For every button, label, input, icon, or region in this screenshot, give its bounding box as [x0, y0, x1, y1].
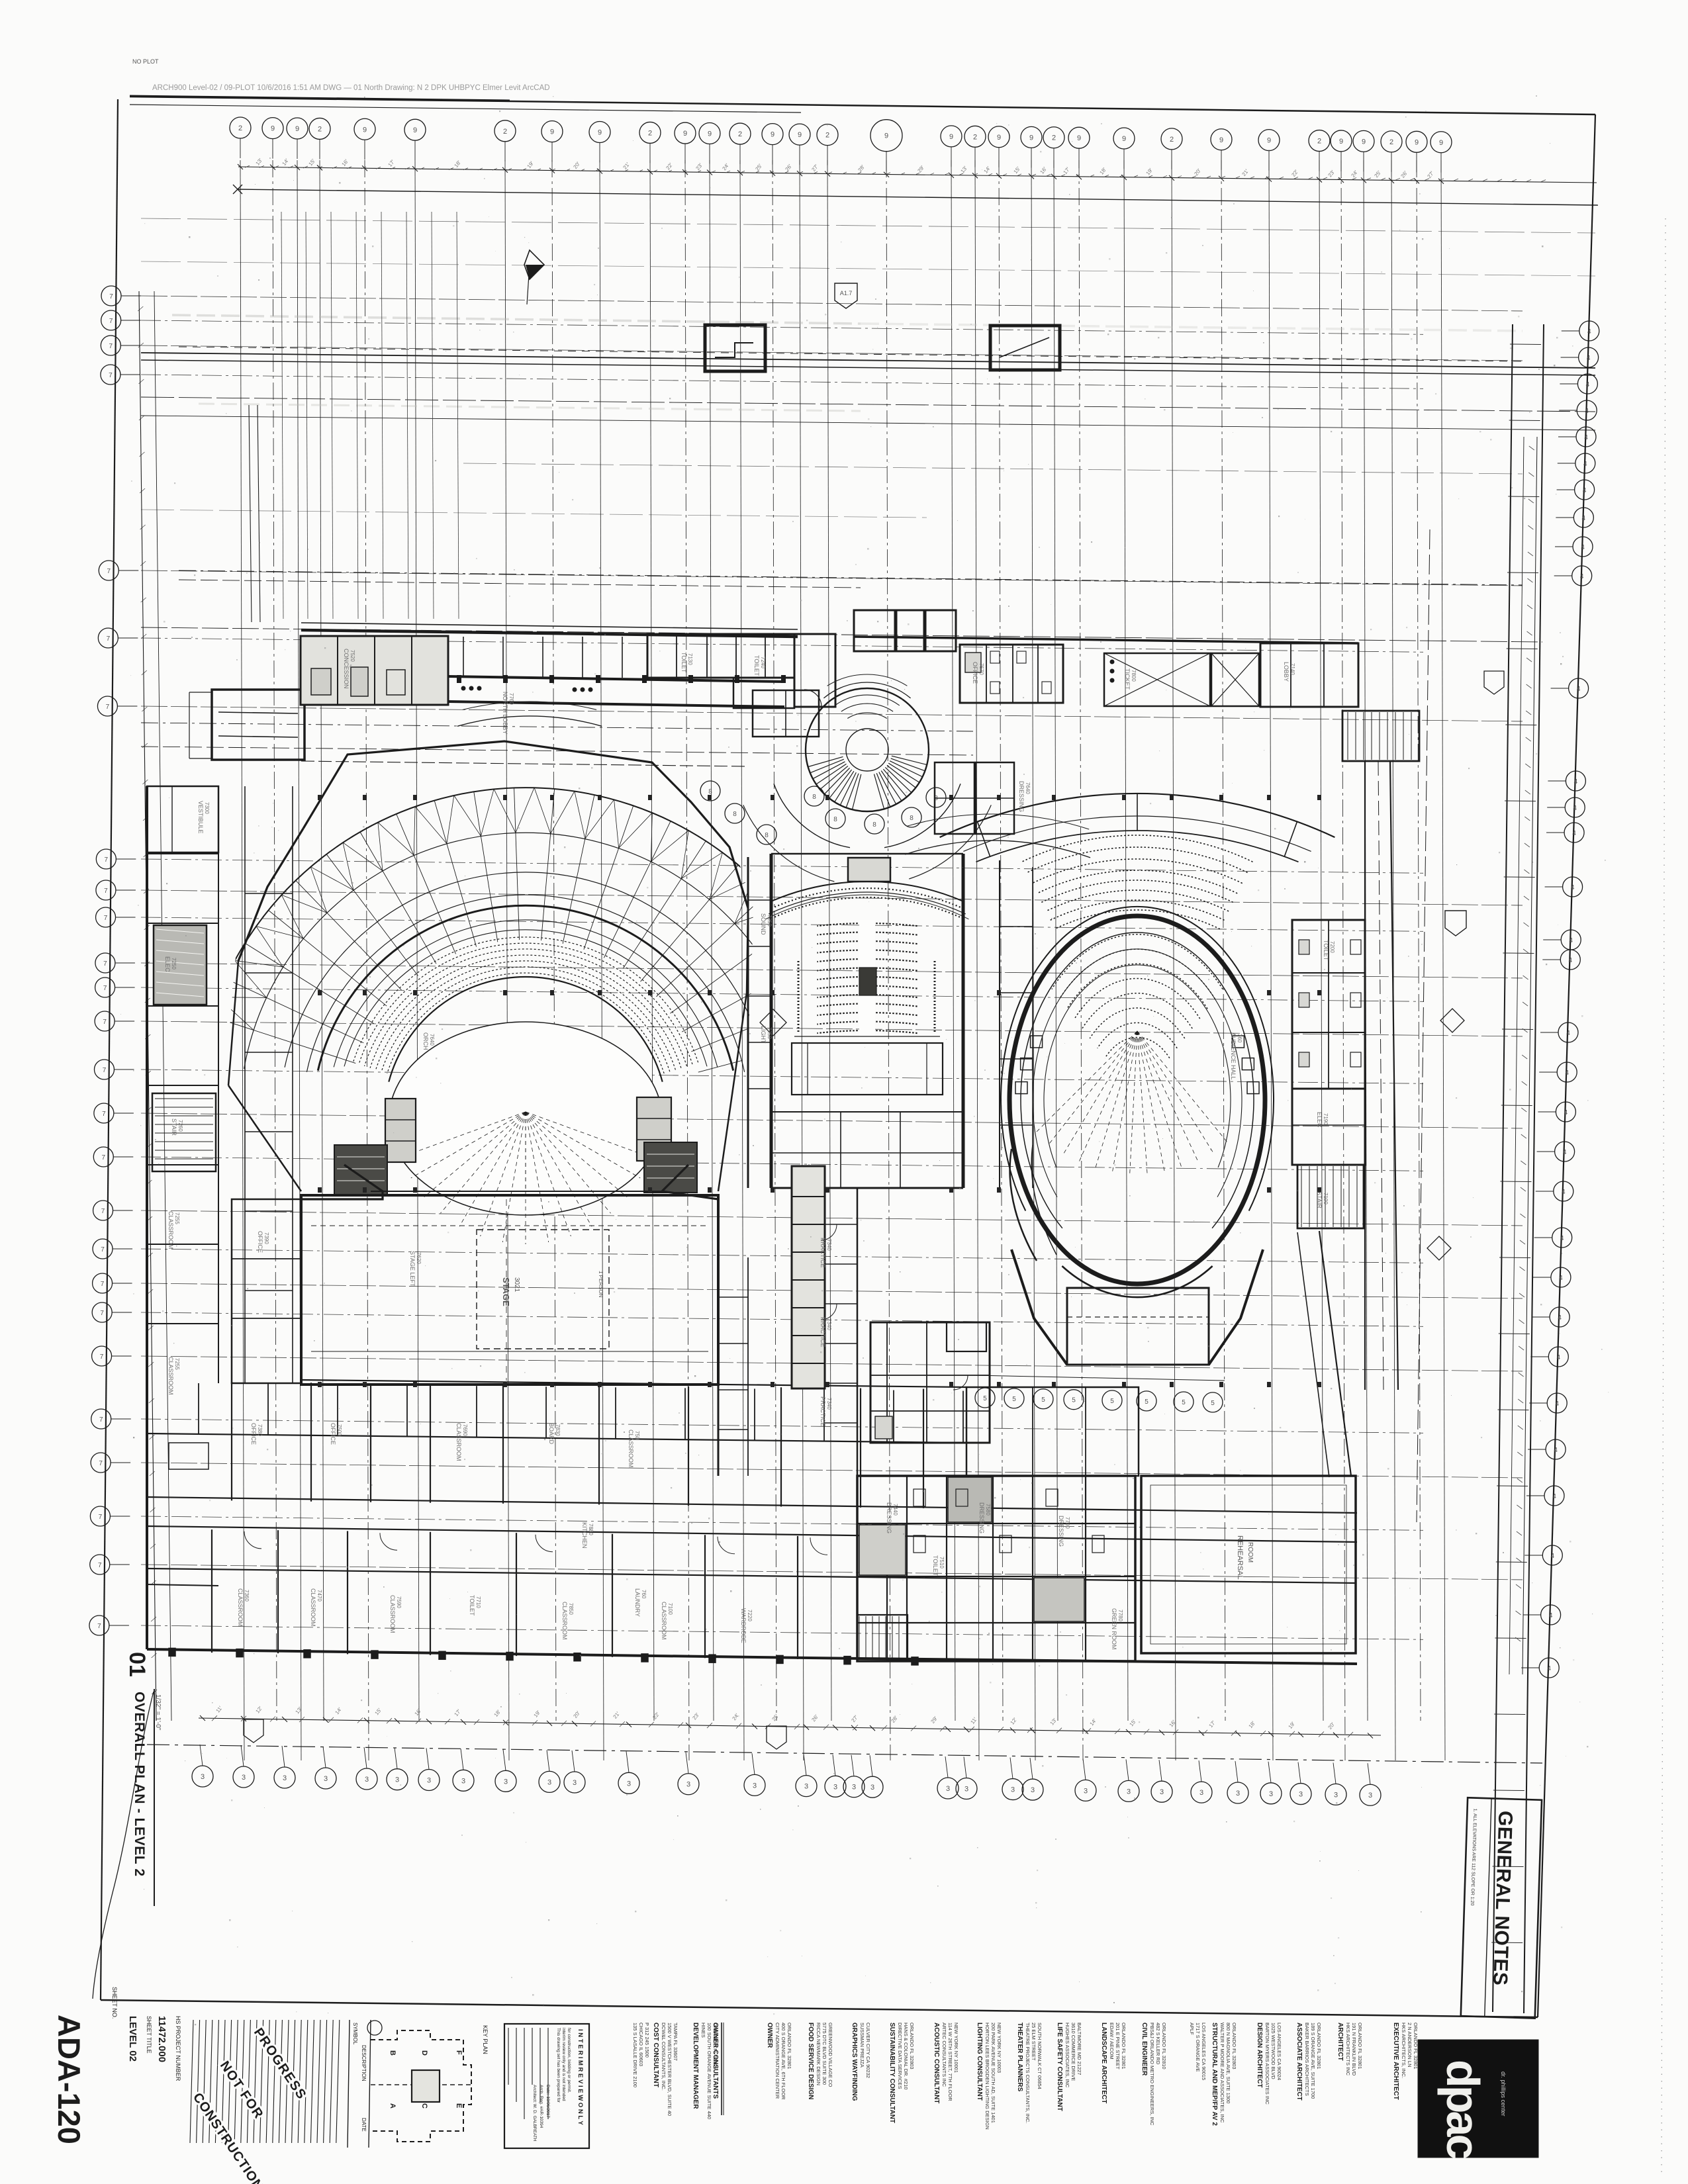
svg-text:dr. phillips center: dr. phillips center — [1500, 2071, 1507, 2116]
svg-text:4: 4 — [1581, 544, 1585, 551]
svg-text:NORTH LOBBY: NORTH LOBBY — [502, 692, 508, 734]
svg-text:Date: 10/06/2017: Date: 10/06/2017 — [545, 2085, 550, 2118]
svg-text:8: 8 — [833, 816, 837, 823]
svg-text:7690: 7690 — [462, 1424, 468, 1436]
svg-text:HANS & COLONIAL DR. #210: HANS & COLONIAL DR. #210 — [903, 2023, 909, 2089]
svg-text:201 E PINE STREET: 201 E PINE STREET — [1115, 2023, 1121, 2070]
svg-text:4: 4 — [1587, 328, 1591, 336]
svg-text:9: 9 — [363, 126, 367, 134]
svg-text:7190: 7190 — [1323, 1193, 1329, 1205]
svg-text:9: 9 — [413, 126, 417, 134]
svg-text:7190: 7190 — [1323, 1113, 1329, 1125]
svg-text:7: 7 — [97, 1623, 101, 1630]
svg-text:7255: 7255 — [174, 1212, 180, 1224]
svg-text:2 N ANDERSON LN: 2 N ANDERSON LN — [1407, 2023, 1413, 2068]
svg-text:4: 4 — [1565, 1069, 1569, 1077]
svg-text:9: 9 — [295, 125, 299, 133]
svg-text:CITY ADMINISTRATION CENTER: CITY ADMINISTRATION CENTER — [774, 2023, 780, 2099]
svg-text:STAGE: STAGE — [501, 1277, 511, 1306]
svg-text:7250: 7250 — [171, 958, 177, 970]
svg-text:4: 4 — [1574, 778, 1578, 786]
svg-text:7510: 7510 — [939, 1557, 945, 1569]
svg-text:ORLANDO FL 32801: ORLANDO FL 32801 — [1121, 2023, 1127, 2070]
svg-text:9: 9 — [884, 132, 888, 140]
svg-text:7: 7 — [107, 568, 111, 575]
svg-text:5: 5 — [983, 1395, 987, 1402]
svg-text:9: 9 — [1219, 136, 1223, 144]
svg-text:7200: 7200 — [1329, 941, 1335, 953]
svg-text:482 S KELLER RD: 482 S KELLER RD — [1155, 2023, 1161, 2065]
svg-text:SHEET NO.: SHEET NO. — [111, 1987, 118, 2019]
svg-text:7: 7 — [103, 960, 107, 968]
svg-text:4: 4 — [1569, 957, 1573, 964]
svg-text:TOILET: TOILET — [469, 1595, 475, 1616]
svg-text:7260: 7260 — [177, 1120, 183, 1132]
svg-text:7: 7 — [101, 1281, 105, 1288]
svg-text:Arch. Reg. #AR-10394: Arch. Reg. #AR-10394 — [539, 2085, 543, 2128]
svg-text:THEATER PLANNERS: THEATER PLANNERS — [1016, 2023, 1023, 2092]
svg-text:A1.7: A1.7 — [840, 290, 853, 296]
svg-text:3021: 3021 — [513, 1277, 520, 1293]
svg-text:7470: 7470 — [316, 1590, 322, 1602]
svg-text:WALTER P MOORE AND ASSOCIATES,: WALTER P MOORE AND ASSOCIATES, INC — [1219, 2023, 1225, 2123]
svg-text:HUGHES ASSOCIATES, INC: HUGHES ASSOCIATES, INC — [1064, 2023, 1070, 2088]
svg-text:CIVIL ENGINEER: CIVIL ENGINEER — [1141, 2023, 1148, 2076]
svg-text:01: 01 — [124, 1652, 150, 1677]
svg-text:3: 3 — [1127, 1788, 1131, 1796]
svg-text:REHEARSAL: REHEARSAL — [1236, 1535, 1244, 1580]
svg-text:2: 2 — [1052, 134, 1056, 142]
svg-text:4: 4 — [1563, 1149, 1567, 1156]
svg-text:4: 4 — [1583, 461, 1587, 468]
svg-text:4: 4 — [1551, 1553, 1555, 1560]
svg-text:dpac: dpac — [1437, 2060, 1489, 2158]
svg-text:1025 WESTWOOD BLVD: 1025 WESTWOOD BLVD — [1270, 2023, 1276, 2079]
svg-text:7: 7 — [99, 1416, 103, 1424]
svg-text:ROOM: ROOM — [1246, 1542, 1254, 1563]
svg-text:4: 4 — [1587, 355, 1591, 362]
svg-text:F: F — [455, 2050, 463, 2055]
svg-text:7255: 7255 — [174, 1358, 180, 1370]
svg-text:400 S ORANGE AVE, 6TH FLOOR: 400 S ORANGE AVE, 6TH FLOOR — [780, 2023, 786, 2100]
svg-text:ARCH900 Level-02 / 09-PLOT 10/: ARCH900 Level-02 / 09-PLOT 10/6/2016 1:5… — [152, 84, 550, 92]
svg-text:3: 3 — [242, 1774, 246, 1782]
svg-text:7640: 7640 — [1025, 782, 1031, 794]
svg-text:7: 7 — [106, 704, 110, 711]
svg-text:191 N FRANKLIN BLVD: 191 N FRANKLIN BLVD — [1351, 2023, 1357, 2076]
svg-text:D: D — [420, 2050, 428, 2056]
svg-text:1500 V WESTCHESTER BLVD, SUITE: 1500 V WESTCHESTER BLVD, SUITE 40 — [667, 2023, 673, 2116]
svg-text:DESCRIPTION: DESCRIPTION — [361, 2045, 367, 2081]
svg-text:P 312 245 1500: P 312 245 1500 — [644, 2023, 650, 2058]
svg-text:DIRECTIVE DATA SERVICES: DIRECTIVE DATA SERVICES — [897, 2023, 903, 2089]
svg-text:9: 9 — [949, 133, 953, 141]
svg-text:4: 4 — [1562, 1189, 1566, 1196]
svg-text:9: 9 — [1077, 134, 1081, 142]
svg-text:ORLANDO FL 32810: ORLANDO FL 32810 — [1161, 2023, 1167, 2070]
svg-text:ELEC: ELEC — [164, 956, 171, 972]
svg-text:AUDIENCE HALL: AUDIENCE HALL — [1230, 1032, 1237, 1080]
svg-text:3: 3 — [964, 1785, 968, 1793]
svg-text:7: 7 — [107, 635, 111, 643]
svg-text:HORTON LEES BROGDEN LIGHTING D: HORTON LEES BROGDEN LIGHTING DESIGN — [984, 2023, 990, 2130]
svg-text:7: 7 — [103, 985, 107, 992]
svg-text:BARTON MYERS ASSOCIATES INC: BARTON MYERS ASSOCIATES INC — [1264, 2023, 1270, 2105]
svg-text:VESTIBULE: VESTIBULE — [197, 801, 204, 834]
svg-text:7: 7 — [101, 1246, 105, 1253]
svg-text:ARTEC CONSULTANTS INC: ARTEC CONSULTANTS INC — [941, 2023, 947, 2087]
svg-text:BOARD: BOARD — [548, 1423, 555, 1445]
svg-text:DATE: DATE — [361, 2118, 367, 2132]
svg-text:HKS ARCHITECTS, INC.: HKS ARCHITECTS, INC. — [1401, 2023, 1407, 2078]
svg-text:7500: 7500 — [336, 1424, 342, 1436]
svg-text:2: 2 — [973, 133, 977, 141]
svg-text:E: E — [455, 2103, 463, 2108]
svg-text:DRESSING: DRESSING — [886, 1502, 892, 1533]
svg-text:4: 4 — [1577, 686, 1581, 693]
svg-text:9: 9 — [1122, 135, 1126, 143]
svg-text:BAKER BARRIOS ARCHITECTS: BAKER BARRIOS ARCHITECTS — [1304, 2023, 1310, 2096]
svg-text:3: 3 — [1199, 1789, 1203, 1797]
svg-text:DESIGN ARCHITECT: DESIGN ARCHITECT — [1256, 2023, 1263, 2088]
svg-text:3: 3 — [283, 1774, 287, 1782]
svg-text:9: 9 — [1362, 138, 1366, 146]
svg-text:3: 3 — [1011, 1786, 1015, 1794]
svg-text:2: 2 — [238, 124, 242, 132]
svg-text:7570: 7570 — [978, 663, 984, 675]
svg-text:3: 3 — [870, 1784, 874, 1792]
svg-text:5: 5 — [1110, 1398, 1114, 1405]
svg-text:7: 7 — [105, 856, 109, 864]
svg-text:TAMPA FL 33607: TAMPA FL 33607 — [673, 2023, 679, 2061]
svg-text:LOS ANGELES CA 90015: LOS ANGELES CA 90015 — [1201, 2023, 1207, 2080]
svg-text:750: 750 — [634, 1431, 640, 1440]
svg-text:NEW YORK NY 10001: NEW YORK NY 10001 — [953, 2023, 959, 2073]
svg-text:THEATRE PROJECTS CONSULTANTS,: THEATRE PROJECTS CONSULTANTS, INC. — [1025, 2023, 1031, 2124]
svg-text:SYMBOL: SYMBOL — [352, 2023, 358, 2045]
svg-text:CHICAGO IL 60603: CHICAGO IL 60603 — [638, 2023, 644, 2066]
svg-text:3: 3 — [753, 1782, 757, 1790]
svg-text:OWNER CONSULTANTS: OWNER CONSULTANTS — [712, 2023, 719, 2099]
svg-text:7300: 7300 — [204, 802, 210, 814]
svg-text:OWNER: OWNER — [766, 2023, 773, 2048]
svg-text:5: 5 — [1211, 1400, 1215, 1407]
svg-text:OFFICE: OFFICE — [330, 1423, 336, 1445]
svg-text:4: 4 — [1555, 1400, 1559, 1408]
svg-text:COST CONSULTANT: COST CONSULTANT — [652, 2023, 659, 2087]
svg-text:CLASSROOM: CLASSROOM — [167, 1211, 174, 1250]
svg-text:4: 4 — [1571, 884, 1575, 891]
svg-text:KEY PLAN: KEY PLAN — [482, 2025, 489, 2054]
svg-text:7590: 7590 — [396, 1596, 402, 1608]
svg-text:3: 3 — [627, 1780, 631, 1788]
svg-text:4: 4 — [1584, 434, 1588, 441]
svg-text:8: 8 — [812, 794, 816, 801]
svg-text:3610 COMMERCE DRIVE: 3610 COMMERCE DRIVE — [1070, 2023, 1076, 2081]
svg-text:3: 3 — [427, 1776, 431, 1784]
svg-text:7: 7 — [102, 1154, 106, 1161]
svg-text:GRAPHICS WAYFINDING: GRAPHICS WAYFINDING — [851, 2023, 858, 2101]
svg-text:3: 3 — [833, 1783, 837, 1791]
svg-text:for construction, bidding or p: for construction, bidding or permit. — [567, 2028, 571, 2093]
svg-text:HINES: HINES — [700, 2023, 706, 2038]
svg-text:3: 3 — [1368, 1792, 1372, 1799]
svg-text:3: 3 — [461, 1777, 465, 1785]
svg-text:7700: 7700 — [1064, 1517, 1070, 1529]
svg-text:TICKET: TICKET — [1124, 668, 1131, 690]
svg-text:RICCA NEWMARK DESIGN: RICCA NEWMARK DESIGN — [816, 2023, 821, 2085]
svg-text:LEVEL 02: LEVEL 02 — [127, 2016, 138, 2062]
svg-text:B: B — [389, 2050, 397, 2056]
svg-text:800 N MAGNOLIA AVE, SUITE 1300: 800 N MAGNOLIA AVE, SUITE 1300 — [1225, 2023, 1231, 2103]
svg-text:DRESSING: DRESSING — [978, 1502, 985, 1533]
svg-text:1/32" = 1'-0": 1/32" = 1'-0" — [154, 1694, 162, 1731]
svg-text:7390: 7390 — [263, 1232, 269, 1244]
svg-text:CLASSROOM: CLASSROOM — [237, 1588, 244, 1627]
svg-text:SOUND: SOUND — [760, 913, 767, 935]
svg-text:7: 7 — [100, 1310, 104, 1317]
svg-text:9: 9 — [550, 128, 554, 136]
svg-text:NO PLOT: NO PLOT — [132, 58, 159, 65]
svg-text:3: 3 — [1334, 1791, 1338, 1799]
svg-text:7620: 7620 — [416, 1252, 422, 1264]
svg-text:OFFICE: OFFICE — [972, 662, 978, 684]
svg-text:189 S ORANGE AVE, SUITE 1700: 189 S ORANGE AVE, SUITE 1700 — [1310, 2023, 1316, 2099]
svg-text:5: 5 — [1182, 1399, 1186, 1406]
svg-text:4: 4 — [1586, 381, 1590, 388]
svg-text:I N T E R I M R E V I E W: I N T E R I M R E V I E W O N L Y — [577, 2029, 584, 2125]
svg-text:7780: 7780 — [1117, 1610, 1123, 1621]
svg-text:4: 4 — [1557, 1354, 1561, 1361]
svg-text:9: 9 — [1029, 134, 1033, 142]
svg-text:8: 8 — [708, 788, 712, 796]
svg-text:4: 4 — [1558, 1314, 1562, 1322]
svg-text:2: 2 — [1389, 138, 1393, 146]
svg-text:7360: 7360 — [244, 1590, 250, 1602]
svg-text:TOILET: TOILET — [1323, 940, 1329, 961]
svg-text:Architect: W. D. GALBREATH: Architect: W. D. GALBREATH — [532, 2085, 537, 2142]
svg-text:3: 3 — [1236, 1790, 1240, 1797]
svg-text:9: 9 — [1439, 139, 1443, 147]
svg-text:7: 7 — [99, 1460, 103, 1467]
svg-text:DEVELOPMENT MANAGER: DEVELOPMENT MANAGER — [692, 2023, 699, 2109]
svg-text:7250: 7250 — [767, 1027, 773, 1039]
svg-text:200 PARK AVENUE SOUTH AD, SUIT: 200 PARK AVENUE SOUTH AD, SUITE 1401 — [990, 2023, 996, 2123]
svg-text:5: 5 — [1041, 1396, 1045, 1404]
svg-text:760: 760 — [641, 1590, 647, 1599]
svg-text:3: 3 — [852, 1784, 856, 1792]
svg-text:2: 2 — [318, 125, 322, 133]
svg-text:7380: 7380 — [257, 1424, 263, 1436]
svg-text:OFFICE: OFFICE — [257, 1231, 263, 1253]
svg-text:3: 3 — [395, 1776, 399, 1784]
svg-text:CULVER CITY CA 90232: CULVER CITY CA 90232 — [865, 2023, 871, 2078]
svg-text:114 W 26TH STREET, 7TH FLOOR: 114 W 26TH STREET, 7TH FLOOR — [947, 2023, 953, 2101]
svg-text:STAIR: STAIR — [1316, 1191, 1323, 1208]
svg-text:STAIR: STAIR — [171, 1118, 177, 1136]
svg-text:7: 7 — [103, 1019, 107, 1026]
svg-text:2: 2 — [1317, 138, 1321, 146]
svg-text:ORCH: ORCH — [422, 1032, 429, 1050]
svg-text:4: 4 — [1566, 1030, 1570, 1037]
svg-text:3: 3 — [201, 1773, 205, 1781]
svg-text:CLASSROOM: CLASSROOM — [167, 1357, 174, 1395]
svg-text:3: 3 — [946, 1785, 950, 1793]
svg-text:4: 4 — [1582, 515, 1586, 522]
svg-text:SHEET TITLE: SHEET TITLE — [146, 2016, 152, 2054]
svg-text:4: 4 — [1554, 1447, 1558, 1454]
svg-text:HKS ARCHITECTS INC: HKS ARCHITECTS INC — [1345, 2023, 1351, 2076]
svg-text:7760: 7760 — [508, 693, 514, 705]
svg-text:4: 4 — [1547, 1665, 1551, 1672]
svg-text:SOUTH NORWALK CT 06854: SOUTH NORWALK CT 06854 — [1037, 2023, 1043, 2089]
svg-text:STAGE LEFT: STAGE LEFT — [409, 1251, 416, 1287]
svg-text:9: 9 — [1415, 138, 1419, 146]
svg-text:7800: 7800 — [1131, 670, 1137, 682]
svg-text:7340: 7340 — [826, 1239, 832, 1251]
svg-text:This drawing set has been prep: This drawing set has been prepared for — [556, 2028, 561, 2103]
svg-text:3: 3 — [686, 1781, 690, 1789]
svg-text:CLASSROOM: CLASSROOM — [628, 1430, 634, 1468]
svg-text:25 ELM STREET: 25 ELM STREET — [1031, 2023, 1037, 2061]
svg-text:3: 3 — [324, 1775, 328, 1783]
svg-text:SUSTAINABILITY CONSULTANT: SUSTAINABILITY CONSULTANT — [888, 2023, 896, 2123]
svg-text:CLASSROOM: CLASSROOM — [561, 1602, 568, 1640]
svg-text:7640: 7640 — [429, 1034, 435, 1046]
svg-text:3: 3 — [1084, 1787, 1088, 1795]
svg-text:3: 3 — [504, 1778, 508, 1786]
svg-text:DRESSING: DRESSING — [1018, 781, 1025, 812]
svg-text:8: 8 — [765, 832, 769, 839]
svg-text:LOBBY: LOBBY — [1283, 662, 1289, 682]
svg-text:7580: 7580 — [985, 1504, 991, 1516]
svg-text:8: 8 — [872, 821, 876, 829]
svg-text:EXECUTIVE ARCHITECT: EXECUTIVE ARCHITECT — [1392, 2023, 1399, 2100]
svg-text:5775 DTC BLVD SUITE 300: 5775 DTC BLVD SUITE 300 — [821, 2023, 827, 2085]
svg-text:TOILET: TOILET — [753, 655, 760, 676]
svg-text:3: 3 — [547, 1778, 551, 1786]
svg-text:FOOD SERVICE DESIGN: FOOD SERVICE DESIGN — [807, 2023, 814, 2100]
svg-text:7: 7 — [109, 293, 113, 300]
svg-text:CLASSROOM: CLASSROOM — [389, 1595, 396, 1633]
svg-text:9: 9 — [708, 130, 712, 138]
svg-text:ORLANDO FL 32801: ORLANDO FL 32801 — [1316, 2023, 1322, 2070]
svg-text:GREEN ROOM: GREEN ROOM — [1111, 1608, 1117, 1650]
svg-text:ORLANDO FL 32803: ORLANDO FL 32803 — [909, 2023, 915, 2070]
svg-text:7250: 7250 — [767, 915, 773, 927]
svg-text:7830: 7830 — [555, 1424, 561, 1436]
svg-text:8: 8 — [910, 815, 914, 822]
svg-text:7: 7 — [104, 887, 108, 895]
svg-text:BALTIMORE MD 21227: BALTIMORE MD 21227 — [1076, 2023, 1082, 2075]
svg-text:DCW&L CONSULTANTS, INC.: DCW&L CONSULTANTS, INC. — [661, 2023, 667, 2091]
svg-text:4: 4 — [1580, 573, 1584, 580]
svg-text:NEW YORK NY 10003: NEW YORK NY 10003 — [996, 2023, 1002, 2073]
svg-text:3: 3 — [1031, 1786, 1035, 1794]
svg-text:ORLANDO FL 32801: ORLANDO FL 32801 — [1357, 2023, 1363, 2070]
svg-text:7: 7 — [101, 1208, 105, 1215]
svg-text:7: 7 — [109, 343, 113, 350]
svg-text:7140: 7140 — [1289, 663, 1295, 675]
svg-text:7: 7 — [98, 1562, 102, 1569]
svg-text:ACOUSTIC CONSULTANT: ACOUSTIC CONSULTANT — [933, 2023, 940, 2103]
svg-text:3: 3 — [573, 1779, 577, 1787]
svg-text:7: 7 — [100, 1353, 104, 1361]
svg-text:HS PROJECT NUMBER: HS PROJECT NUMBER — [175, 2016, 181, 2081]
svg-text:7850: 7850 — [568, 1603, 574, 1615]
svg-text:PRACTICE: PRACTICE — [820, 1317, 826, 1347]
svg-text:9: 9 — [598, 129, 602, 137]
svg-text:TOILET: TOILET — [932, 1555, 939, 1576]
svg-text:7340: 7340 — [826, 1318, 832, 1330]
svg-text:4: 4 — [1564, 1109, 1568, 1116]
svg-text:3: 3 — [1299, 1791, 1303, 1799]
svg-text:8: 8 — [733, 811, 737, 818]
svg-text:CLASSROOM: CLASSROOM — [310, 1588, 316, 1627]
svg-text:2: 2 — [738, 130, 742, 138]
svg-text:LANDSCAPE ARCHITECT: LANDSCAPE ARCHITECT — [1100, 2023, 1107, 2103]
svg-text:4: 4 — [1569, 937, 1573, 944]
svg-text:7: 7 — [102, 1111, 106, 1118]
svg-text:7220: 7220 — [747, 1610, 753, 1621]
svg-text:PRACTICE: PRACTICE — [820, 1238, 826, 1268]
svg-text:ADA-120: ADA-120 — [52, 2015, 87, 2144]
svg-text:9: 9 — [1267, 137, 1271, 145]
svg-text:3: 3 — [804, 1783, 808, 1791]
svg-text:OFFICE: OFFICE — [250, 1423, 257, 1445]
svg-text:4: 4 — [1549, 1612, 1553, 1619]
svg-text:WARDROBE: WARDROBE — [740, 1608, 747, 1643]
svg-text:KITCHEN: KITCHEN — [581, 1522, 588, 1549]
svg-text:LOS ANGELES CA 90024: LOS ANGELES CA 90024 — [1276, 2023, 1282, 2080]
svg-text:11472.000: 11472.000 — [156, 2016, 167, 2062]
svg-text:3: 3 — [1269, 1790, 1273, 1798]
svg-text:ASSOCIATE ARCHITECT: ASSOCIATE ARCHITECT — [1295, 2023, 1303, 2101]
svg-text:TOILET: TOILET — [680, 652, 687, 673]
svg-text:4: 4 — [1552, 1493, 1556, 1500]
svg-text:LIFE SAFETY CONSULTANT: LIFE SAFETY CONSULTANT — [1056, 2023, 1063, 2111]
svg-text:135 S LASALLE DRIVE 2100: 135 S LASALLE DRIVE 2100 — [632, 2023, 638, 2087]
svg-text:OVERALL PLAN - LEVEL 2: OVERALL PLAN - LEVEL 2 — [132, 1692, 147, 1877]
svg-text:CONCESSION: CONCESSION — [343, 649, 350, 689]
svg-text:1717 S ORANGE AVE: 1717 S ORANGE AVE — [1195, 2023, 1201, 2071]
svg-text:9: 9 — [798, 131, 802, 139]
svg-text:7440: 7440 — [892, 1504, 898, 1516]
svg-text:LIGHT: LIGHT — [760, 1026, 767, 1044]
svg-text:C: C — [420, 2103, 428, 2109]
svg-text:PRACTICE: PRACTICE — [820, 1396, 826, 1427]
svg-text:7340: 7340 — [826, 1398, 832, 1410]
svg-text:1 PERSON: 1 PERSON — [598, 1271, 604, 1298]
svg-text:STRUCTURAL AND MEP/FP AV 2: STRUCTURAL AND MEP/FP AV 2 — [1211, 2023, 1218, 2126]
svg-text:CLASSROOM: CLASSROOM — [661, 1602, 667, 1640]
svg-text:ARCHITECT: ARCHITECT — [1336, 2023, 1344, 2061]
svg-text:3: 3 — [1160, 1788, 1164, 1796]
svg-text:4: 4 — [1583, 487, 1587, 494]
svg-text:5: 5 — [1012, 1396, 1016, 1403]
svg-text:4: 4 — [1560, 1235, 1564, 1242]
svg-text:9: 9 — [1339, 138, 1343, 146]
svg-text:2: 2 — [503, 128, 507, 136]
svg-text:760: 760 — [1237, 1034, 1243, 1043]
svg-text:SUSSMAN PREJZA: SUSSMAN PREJZA — [859, 2023, 865, 2068]
svg-text:2: 2 — [648, 129, 652, 137]
svg-text:interim review only and is not: interim review only and is not intended — [561, 2028, 566, 2101]
svg-text:CLASSROOM: CLASSROOM — [455, 1423, 462, 1461]
svg-text:3: 3 — [365, 1776, 369, 1784]
svg-text:APLF: APLF — [1189, 2023, 1195, 2035]
svg-text:2: 2 — [1170, 136, 1174, 144]
